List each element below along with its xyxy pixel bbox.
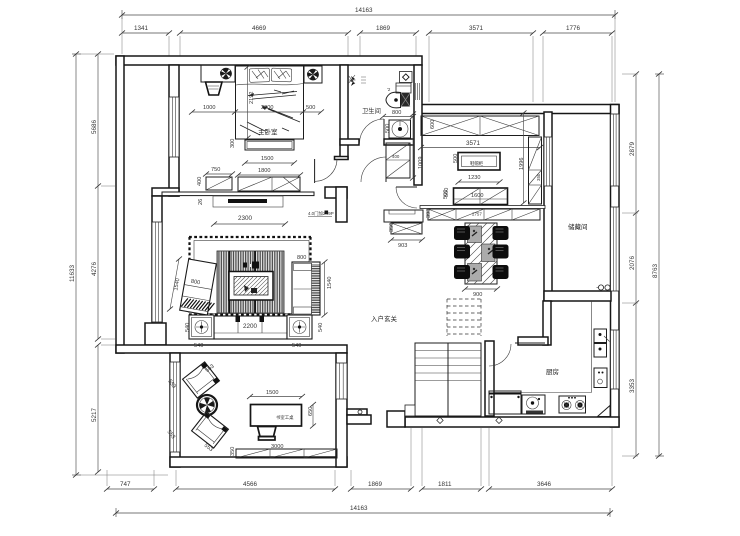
svg-text:2192: 2192 — [249, 92, 255, 104]
svg-text:600: 600 — [430, 120, 436, 129]
svg-text:3571: 3571 — [466, 140, 481, 147]
svg-text:300: 300 — [230, 139, 236, 148]
svg-text:500: 500 — [443, 190, 449, 199]
svg-text:卫生间: 卫生间 — [362, 106, 381, 115]
svg-text:1600: 1600 — [471, 193, 483, 199]
svg-text:350: 350 — [389, 223, 395, 232]
svg-text:2000: 2000 — [261, 105, 273, 111]
svg-text:540: 540 — [318, 323, 324, 332]
svg-text:1869: 1869 — [368, 481, 383, 488]
svg-text:350: 350 — [230, 447, 236, 456]
svg-text:14163: 14163 — [355, 7, 373, 14]
svg-text:1500: 1500 — [261, 156, 273, 162]
svg-text:1811: 1811 — [438, 481, 452, 488]
svg-text:1500: 1500 — [266, 390, 278, 396]
svg-text:主卧室: 主卧室 — [258, 127, 278, 136]
svg-text:500: 500 — [306, 105, 315, 111]
svg-text:26: 26 — [198, 199, 204, 205]
svg-text:4.0门加2X9P: 4.0门加2X9P — [308, 210, 334, 217]
svg-text:1996: 1996 — [519, 158, 525, 170]
svg-text:400: 400 — [197, 177, 203, 186]
svg-text:800: 800 — [392, 110, 401, 116]
svg-text:1230: 1230 — [468, 175, 480, 181]
svg-text:4566: 4566 — [243, 481, 258, 488]
svg-text:11633: 11633 — [69, 264, 76, 282]
svg-text:5217: 5217 — [91, 407, 98, 422]
svg-text:3646: 3646 — [537, 481, 552, 488]
svg-text:500: 500 — [453, 154, 459, 163]
svg-text:540: 540 — [185, 323, 191, 332]
svg-text:800: 800 — [297, 255, 306, 261]
svg-text:400: 400 — [392, 154, 400, 159]
svg-text:3353: 3353 — [629, 378, 636, 393]
svg-text:2879: 2879 — [629, 141, 636, 156]
svg-text:1776: 1776 — [566, 25, 581, 32]
svg-text:3571: 3571 — [469, 25, 484, 32]
svg-text:1009: 1009 — [418, 157, 424, 169]
svg-text:8763: 8763 — [652, 263, 659, 278]
svg-text:4276: 4276 — [91, 261, 98, 276]
svg-text:540: 540 — [194, 343, 203, 349]
svg-text:1800: 1800 — [258, 168, 270, 174]
svg-text:540: 540 — [292, 343, 301, 349]
svg-text:903: 903 — [398, 243, 407, 249]
svg-text:入户玄关: 入户玄关 — [371, 314, 398, 323]
svg-text:2200: 2200 — [243, 323, 258, 330]
svg-text:500: 500 — [385, 124, 391, 133]
svg-text:厨房: 厨房 — [546, 367, 559, 376]
svg-text:14163: 14163 — [350, 505, 368, 512]
svg-text:2300: 2300 — [238, 215, 253, 222]
svg-text:747: 747 — [120, 481, 131, 488]
svg-text:1869: 1869 — [376, 25, 391, 32]
svg-text:350: 350 — [536, 173, 541, 181]
svg-text:2076: 2076 — [629, 255, 636, 270]
svg-text:2757: 2757 — [472, 212, 482, 217]
svg-text:650: 650 — [308, 407, 314, 416]
svg-text:1341: 1341 — [134, 25, 149, 32]
svg-text:5686: 5686 — [91, 119, 98, 134]
svg-text:书室工桌: 书室工桌 — [276, 414, 294, 421]
svg-text:储藏间: 储藏间 — [568, 222, 588, 231]
svg-text:'2: '2 — [387, 87, 391, 92]
svg-text:750: 750 — [211, 167, 220, 173]
svg-text:鞋帽柜: 鞋帽柜 — [470, 160, 484, 167]
svg-text:1000: 1000 — [203, 105, 215, 111]
svg-text:900: 900 — [473, 292, 482, 298]
svg-text:4669: 4669 — [252, 25, 267, 32]
svg-text:1540: 1540 — [327, 277, 333, 289]
